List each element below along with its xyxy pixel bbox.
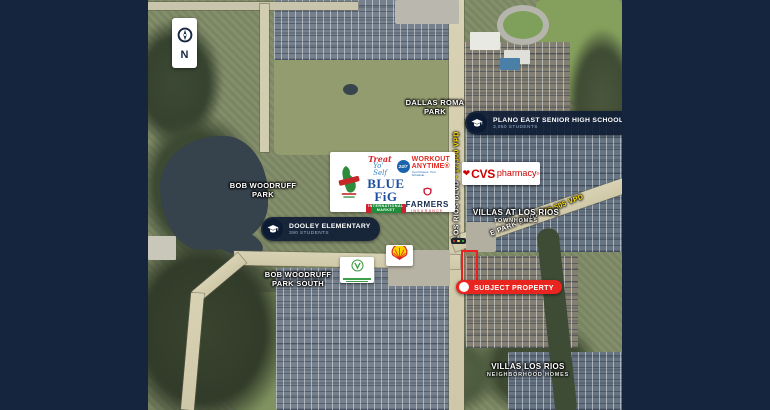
- italian-eatery-logo: [334, 155, 364, 209]
- bob-woodruff-park-south-label: BOB WOODRUFF PARK SOUTH: [258, 270, 338, 288]
- road-top: [148, 2, 358, 10]
- graduation-cap-icon: [467, 113, 487, 133]
- compass-rose-icon: [177, 27, 193, 48]
- north-label: N: [181, 50, 189, 60]
- tenant-logo-box: Treat Yo' Self 24/7 WORKOUT ANYTIME® You…: [330, 152, 455, 212]
- school-students: 3,050 STUDENTS: [493, 125, 622, 130]
- green-wreath-v-icon: [351, 259, 364, 276]
- right-navy-panel: [622, 0, 770, 410]
- storage-building: [148, 236, 176, 260]
- villas-at-los-rios-label: VILLAS AT LOS RIOS TOWNHOMES: [466, 208, 566, 224]
- traffic-light-icon: [451, 238, 466, 244]
- subject-property-dot-icon: [459, 282, 469, 292]
- pond: [343, 84, 358, 95]
- plano-east-badge: PLANO EAST SENIOR HIGH SCHOOL 3,050 STUD…: [465, 111, 622, 135]
- stadium-track: [497, 5, 549, 45]
- farmers-insurance-logo: FARMERS INSURANCE: [406, 184, 449, 214]
- school-students: 390 STUDENTS: [289, 231, 371, 236]
- road-municipal: [260, 4, 269, 152]
- marketing-map-canvas: N DALLAS ROMA PARK PLANO EAST SENIOR HIG…: [0, 0, 770, 410]
- parking-lot: [395, 0, 459, 24]
- north-compass: N: [172, 18, 197, 68]
- workout-24-7-icon: 24/7: [397, 160, 410, 173]
- subject-property-badge: SUBJECT PROPERTY: [456, 280, 562, 294]
- bob-woodruff-park-label: BOB WOODRUFF PARK: [223, 181, 303, 199]
- workout-anytime-logo: 24/7 WORKOUT ANYTIME® Your Fitness. Your…: [397, 156, 450, 177]
- dooley-elementary-badge: DOOLEY ELEMENTARY 390 STUDENTS: [261, 217, 380, 241]
- shell-logo-box: [386, 245, 413, 266]
- school-name: PLANO EAST SENIOR HIGH SCHOOL: [493, 117, 622, 124]
- aerial-map: N DALLAS ROMA PARK PLANO EAST SENIOR HIG…: [148, 0, 622, 410]
- left-navy-panel: [0, 0, 148, 410]
- cvs-heart-icon: ❤: [463, 169, 471, 178]
- emblem-fine-print: [340, 278, 374, 282]
- villas-los-rios-label: VILLAS LOS RIOS NEIGHBORHOOD HOMES: [478, 362, 578, 378]
- green-emblem-logo-box: [340, 257, 374, 283]
- residential-area: [276, 268, 451, 410]
- shell-pecten-icon: [391, 246, 408, 265]
- graduation-cap-icon: [263, 219, 283, 239]
- blue-roof-building: [500, 58, 520, 70]
- cvs-pharmacy-logo-box: ❤ CVS pharmacy ®: [462, 162, 540, 185]
- treat-yo-self-logo: Treat Yo' Self: [368, 155, 397, 177]
- dallas-roma-park-label: DALLAS ROMA PARK: [395, 98, 475, 116]
- blue-fig-logo: BLUE FiG INTERNATIONAL MARKET: [366, 177, 406, 213]
- farmers-shield-icon: [423, 183, 432, 200]
- school-name: DOOLEY ELEMENTARY: [289, 223, 371, 230]
- school-building: [470, 32, 500, 50]
